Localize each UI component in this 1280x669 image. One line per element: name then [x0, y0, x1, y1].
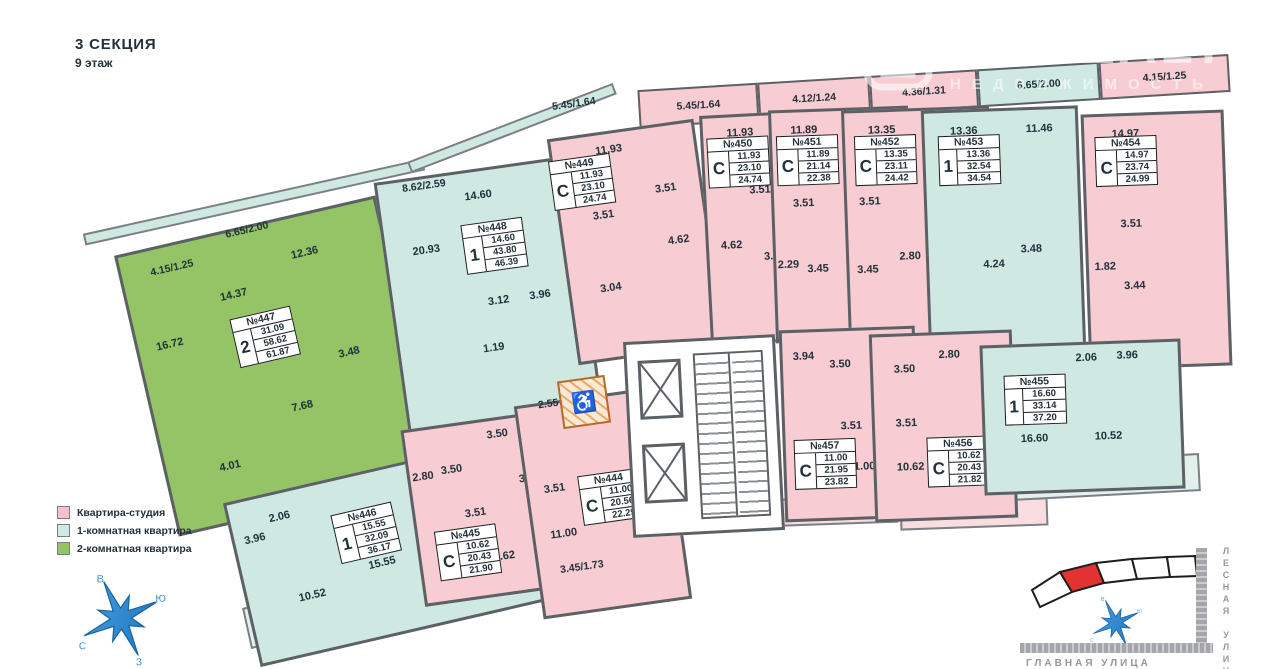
street-bar-horizontal: [1020, 643, 1213, 653]
apartment-card: №455 1 16.60 33.14 37.20: [1003, 374, 1067, 426]
apartment-card: №451 С 11.89 21.14 22.38: [776, 134, 840, 186]
apartment-card: №453 1 13.36 32.54 34.54: [937, 134, 1001, 186]
apartment-449: №449 С 11.93 23.10 24.74 11.93 3.51 3.51…: [547, 119, 725, 365]
room-area-label: 3.50: [894, 363, 916, 376]
legend: Квартира-студия 1-комнатная квартира 2-к…: [57, 506, 192, 560]
compass-rose-icon: В Ю С З: [60, 568, 182, 669]
apartment-card: №454 С 14.97 23.74 24.99: [1094, 135, 1158, 187]
room-area-label: 3.51: [840, 419, 862, 432]
room-area-label: 3.51: [654, 181, 677, 196]
apartment-card: №448 1 14.60 43.80 46.39: [461, 217, 529, 275]
street-name-bottom: ГЛАВНАЯ УЛИЦА: [1026, 658, 1151, 669]
room-area-label: 3.12: [487, 293, 510, 308]
compass-letter-bottom: З: [136, 657, 143, 669]
room-area-label: 7.68: [291, 398, 315, 415]
room-area-label: 3.51: [543, 481, 566, 496]
room-area-label: 16.72: [155, 335, 185, 353]
room-area-label: 3.94: [793, 350, 815, 363]
room-area-label: 10.52: [1095, 430, 1123, 443]
room-area-label: 10.62: [897, 461, 925, 474]
room-area-label: 3.51: [859, 195, 881, 208]
apartment-453: №453 1 13.36 32.54 34.54 13.36 11.46 4.2…: [921, 105, 1086, 355]
room-area-label: 3.50: [829, 358, 851, 371]
room-area-label: 3.48: [1020, 242, 1042, 255]
room-area-label: 2.80: [412, 470, 435, 485]
apartment-card: №449 С 11.93 23.10 24.74: [548, 153, 616, 211]
room-area-label: 2.80: [938, 348, 960, 361]
stair-elevator-core: [623, 334, 785, 538]
apartment-type: С: [708, 151, 731, 187]
compass-letter-right: Ю: [155, 593, 166, 605]
apartment-card: №452 С 13.35 23.11 24.42: [854, 134, 918, 186]
room-area-label: 3.48: [337, 344, 361, 361]
legend-item-one-room: 1-комнатная квартира: [57, 524, 192, 537]
street-bar-vertical: [1196, 548, 1207, 644]
room-area-label: 3.44: [1124, 279, 1146, 292]
room-area-label: 16.60: [1021, 432, 1049, 445]
room-area-label: 11.00: [550, 526, 578, 542]
facade-segment: 6.65/2.00: [977, 62, 1101, 107]
elevator-icon: [637, 358, 684, 420]
area-total: 37.20: [1024, 412, 1066, 424]
wheelchair-icon: ♿: [570, 388, 598, 416]
facade-segment: 4.15/1.25: [1099, 54, 1231, 100]
room-area-label: 3.45: [807, 262, 829, 275]
room-area-label: 3.51: [464, 506, 487, 521]
apartment-type: С: [855, 149, 877, 185]
legend-label: 1-комнатная квартира: [77, 525, 192, 537]
compass-letter-left: С: [79, 640, 87, 652]
page-title: 3 СЕКЦИЯ 9 этаж: [75, 36, 156, 70]
apartment-454: №454 С 14.97 23.74 24.99 14.97 3.51 1.82…: [1081, 110, 1233, 371]
legend-item-studio: Квартира-студия: [57, 506, 192, 519]
room-area-label: 2.29: [778, 259, 800, 272]
room-area-label: 3.50: [440, 462, 463, 477]
one-room-color-swatch: [57, 524, 70, 537]
room-area-label: 3.51: [1120, 217, 1142, 230]
room-area-label: 3.50: [486, 426, 509, 441]
street-name-side: ЛЕСНАЯ УЛИЦА: [1221, 546, 1231, 669]
area-total: 22.38: [799, 172, 838, 184]
dimension-label: 6.65/2.00: [1017, 77, 1061, 92]
apartment-card: №447 2 31.09 58.62 61.87: [229, 306, 301, 369]
room-area-label: 4.62: [721, 239, 743, 252]
dimension-label: 4.15/1.25: [1142, 70, 1186, 85]
room-area-label: 11.46: [1026, 122, 1053, 135]
floor-plan-page: 3 СЕКЦИЯ 9 этаж 5.45/1.64 4.12/1.24 4.36…: [0, 0, 1280, 669]
studio-color-swatch: [57, 506, 70, 519]
staircase-icon: [693, 350, 772, 519]
room-area-label: 1.19: [482, 340, 505, 355]
apartment-card: №456 С 10.62 20.43 21.82: [927, 436, 991, 488]
area-total: 24.99: [1118, 173, 1157, 185]
apartment-card: №450 С 11.93 23.10 24.74: [706, 135, 771, 188]
room-area-label: 3.96: [1116, 349, 1138, 362]
room-area-label: 2.06: [268, 508, 292, 525]
room-area-label: 4.62: [667, 233, 690, 248]
section-title: 3 СЕКЦИЯ: [75, 36, 156, 53]
room-area-label: 3.04: [599, 281, 622, 296]
dimension-label: 4.36/1.31: [902, 84, 946, 99]
two-room-color-swatch: [57, 542, 70, 555]
room-area-label: 3.51: [592, 208, 615, 223]
elevator-icon: [641, 442, 688, 504]
apartment-type: С: [795, 453, 817, 489]
legend-label: 2-комнатная квартира: [77, 543, 192, 555]
apartment-card: №457 С 11.00 21.95 23.82: [794, 438, 858, 490]
apartment-type: С: [1096, 150, 1118, 186]
room-area-label: 10.52: [298, 587, 328, 605]
room-area-label: 3.51: [895, 417, 917, 430]
room-area-label: 20.93: [412, 242, 441, 258]
compass-letter-top: В: [97, 574, 105, 586]
legend-label: Квартира-студия: [77, 507, 165, 519]
room-area-label: 3.51: [793, 197, 815, 210]
room-area-label: 14.60: [464, 188, 493, 204]
apartment-type: С: [777, 149, 799, 185]
room-area-label: 4.01: [218, 458, 242, 475]
area-total: 23.82: [817, 476, 856, 488]
apartment-type: 1: [939, 149, 959, 185]
room-area-label: 3.96: [529, 287, 552, 302]
legend-item-two-room: 2-комнатная квартира: [57, 542, 192, 555]
room-area-label: 1.82: [1094, 260, 1116, 273]
apartment-type: 1: [1005, 389, 1025, 425]
dimension-label: 4.12/1.24: [792, 91, 836, 106]
floor-subtitle: 9 этаж: [75, 56, 156, 70]
apartment-455: №455 1 16.60 33.14 37.20 2.06 3.96 16.60…: [979, 339, 1185, 496]
area-total: 34.54: [958, 172, 1000, 184]
wheelchair-area: ♿: [557, 375, 611, 429]
room-area-label: 2.06: [1075, 351, 1097, 364]
room-area-label: 3.45: [857, 263, 879, 276]
room-area-label: 2.80: [899, 250, 921, 263]
dimension-label: 5.45/1.64: [676, 98, 720, 113]
apartment-type: С: [928, 451, 950, 487]
compass-letter-top: В: [1101, 597, 1105, 603]
room-area-label: 12.36: [290, 244, 320, 262]
room-area-label: 14.37: [219, 286, 249, 304]
apartment-card: №445 С 10.62 20.43 21.90: [434, 524, 502, 582]
room-area-label: 4.24: [983, 258, 1005, 271]
location-minimap: В Ю С З ЛЕСНАЯ УЛИЦА ГЛАВНАЯ УЛИЦА: [1020, 542, 1275, 669]
area-total: 24.42: [877, 172, 916, 184]
area-total: 24.74: [731, 173, 770, 186]
compass-letter-right: Ю: [1137, 609, 1142, 615]
room-area-label: 3.96: [243, 531, 267, 548]
